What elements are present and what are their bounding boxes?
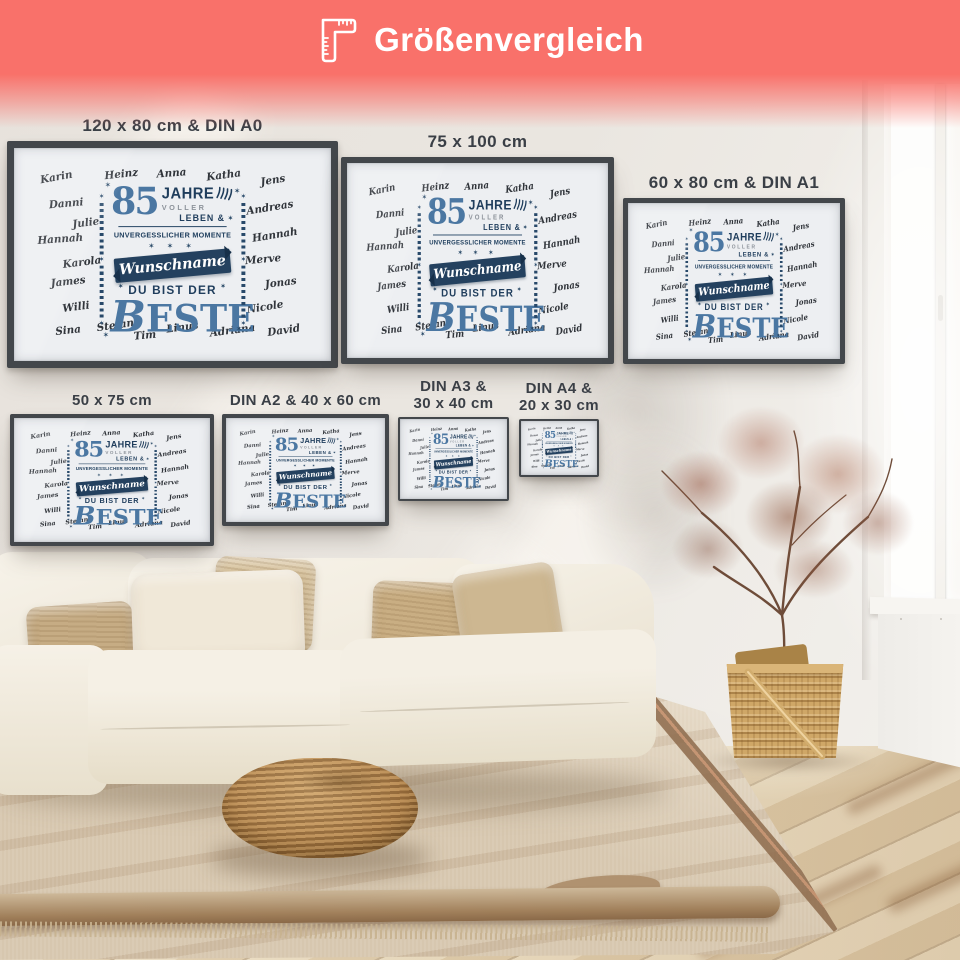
star-icon: ✶ xyxy=(271,507,274,511)
age-caption-column: JAHRE VOLLER LEBEN & xyxy=(469,197,528,231)
product-size-comparison-image: 120 x 80 cm & DIN A0 KarinHeinzAnnaKatha… xyxy=(0,0,960,960)
age-caption-column: JAHRE VOLLER LEBEN & xyxy=(162,186,234,223)
word-unvergesslicher-momente: UNVERGESSLICHER MOMENTE xyxy=(693,263,776,270)
sideboard-door-seam xyxy=(940,618,942,620)
star-icon: ✶ xyxy=(69,524,73,529)
star-icon: ✶ xyxy=(269,502,272,505)
star-icon: ✶ xyxy=(771,252,775,257)
dashed-ornament xyxy=(685,243,688,281)
guest-name: Hannah xyxy=(408,451,423,457)
word-leben: LEBEN & ✶ xyxy=(483,223,528,231)
guest-name: Danni xyxy=(48,196,84,211)
guest-name: James xyxy=(37,491,59,500)
ornament-column-right: ✶ ✶ ✶ xyxy=(778,237,785,334)
wunschname-ribbon: Wunschname xyxy=(545,446,573,455)
age-caption-column: JAHRE VOLLER LEBEN & xyxy=(727,231,775,258)
size-label-line: DIN A2 & 40 x 60 cm xyxy=(230,392,381,409)
guest-name: Jens xyxy=(349,430,362,438)
jahre-line: JAHRE xyxy=(450,434,474,440)
laurel-icon xyxy=(569,431,574,435)
poster-size-label: 75 x 100 cm xyxy=(428,132,528,152)
jahre-line: JAHRE xyxy=(469,198,528,212)
poster-artwork: KarinHeinzAnnaKathaJensDanniAndreasJulie… xyxy=(522,422,596,474)
guest-name: Hannah xyxy=(527,442,538,446)
word-voller: VOLLER xyxy=(162,204,207,212)
star-icon: ✶ xyxy=(333,451,336,454)
ornament-column-left: ✶ ✶ ✶ xyxy=(97,194,107,328)
guest-name: Julie xyxy=(72,215,100,230)
word-jahre: JAHRE xyxy=(105,441,137,450)
star-icon: ✶ xyxy=(278,483,281,486)
ornament-column-left: ✶ ✶ ✶ xyxy=(415,205,423,327)
word-leben-text: LEBEN & xyxy=(309,450,332,454)
age-number: 85 xyxy=(111,186,158,218)
dashed-ornament xyxy=(100,266,104,318)
star-icon: ✶ xyxy=(543,467,545,469)
poster-frame: KarinHeinzAnnaKathaJensDanniAndreasJulie… xyxy=(7,141,338,368)
word-leben-text: LEBEN & xyxy=(561,438,572,440)
dashed-ornament xyxy=(534,271,537,319)
poster-frame: KarinHeinzAnnaKathaJensDanniAndreasJulie… xyxy=(623,198,845,364)
star-icon: ✶ xyxy=(240,257,246,264)
ornament-column-right: ✶ ✶ ✶ xyxy=(575,433,577,466)
guest-name: Danni xyxy=(36,446,58,455)
guest-name: Danni xyxy=(412,437,424,443)
guest-name: Willi xyxy=(44,506,61,515)
star-icon: ✶ xyxy=(573,432,575,434)
dashed-ornament xyxy=(575,435,576,448)
jahre-line: JAHRE xyxy=(727,231,775,242)
ornament-column-right: ✶ ✶ ✶ xyxy=(153,445,159,522)
size-label-line: DIN A4 & xyxy=(519,380,599,397)
age-row: 85 JAHRE VOLLE xyxy=(546,431,571,441)
dashed-ornament xyxy=(575,451,576,464)
age-number: 85 xyxy=(74,440,103,458)
guest-name: Hannah xyxy=(578,441,589,446)
word-leben: LEBEN & ✶ xyxy=(561,438,574,440)
guest-name: David xyxy=(581,465,589,469)
guest-name: Anna xyxy=(555,426,562,430)
poster-frame: KarinHeinzAnnaKathaJensDanniAndreasJulie… xyxy=(222,414,389,526)
guest-name: Andreas xyxy=(538,209,578,227)
star-icon: ✶ xyxy=(776,333,780,339)
dashed-ornament xyxy=(269,476,271,501)
framed-poster: DIN A4 &20 x 30 cm KarinHeinzAnnaKathaJe… xyxy=(519,378,599,477)
word-leben-text: LEBEN & xyxy=(739,251,770,258)
star-icon: ✶ xyxy=(433,286,438,292)
star-icon: ✶ xyxy=(70,438,74,443)
laurel-icon xyxy=(138,440,150,449)
framed-poster: 75 x 100 cm KarinHeinzAnnaKathaJensDanni… xyxy=(341,131,614,364)
age-row: 85 JAHRE VOLLE xyxy=(698,231,770,261)
guest-name: Andreas xyxy=(157,447,187,458)
dashed-ornament xyxy=(67,487,69,517)
word-leben: LEBEN & ✶ xyxy=(456,444,474,447)
guest-name: Sina xyxy=(381,323,403,337)
star-icon: ✶ xyxy=(430,487,432,490)
star-icon: ✶ xyxy=(228,214,234,221)
word-unvergesslicher-momente: UNVERGESSLICHER MOMENTE xyxy=(433,450,474,453)
guest-name: Katha xyxy=(465,427,477,433)
page-title: Größenvergleich xyxy=(374,21,644,59)
star-icon: ✶ xyxy=(105,181,112,189)
size-label-line: 50 x 75 cm xyxy=(72,392,152,409)
star-icon: ✶ xyxy=(330,483,333,486)
word-voller: VOLLER xyxy=(105,451,133,455)
poster-paper: KarinHeinzAnnaKathaJensDanniAndreasJulie… xyxy=(347,163,608,358)
star-icon: ✶ xyxy=(530,325,535,332)
guest-name: Willi xyxy=(660,314,679,325)
word-jahre: JAHRE xyxy=(162,187,215,202)
framed-poster: 60 x 80 cm & DIN A1 KarinHeinzAnnaKathaJ… xyxy=(623,172,845,364)
star-icon: ✶ xyxy=(417,205,422,211)
star-icon: ✶ xyxy=(67,481,71,485)
star-icon: ✶ xyxy=(422,194,427,201)
jahre-line: JAHRE xyxy=(105,441,149,450)
wunschname-ribbon: Wunschname xyxy=(429,254,526,286)
word-leben-text: LEBEN & xyxy=(456,444,471,447)
guest-name: Jens xyxy=(792,221,810,233)
star-icon: ✶ xyxy=(685,329,689,334)
guest-name: Andreas xyxy=(342,443,366,452)
guest-name: Jens xyxy=(166,433,182,442)
rattan-pouf xyxy=(222,758,418,858)
guest-name: James xyxy=(50,274,86,290)
dashed-ornament xyxy=(418,271,421,319)
word-beste: BESTE xyxy=(544,459,573,469)
wunschname-ribbon: Wunschname xyxy=(695,276,774,301)
guest-name: Jens xyxy=(260,172,286,188)
dashed-ornament xyxy=(340,476,342,501)
dashed-ornament xyxy=(429,440,430,459)
dashed-ornament xyxy=(685,289,688,327)
size-label-line: DIN A3 & xyxy=(414,378,494,395)
poster-artwork: KarinHeinzAnnaKathaJensDanniAndreasJulie… xyxy=(15,419,209,541)
guest-name: Danni xyxy=(375,207,404,221)
ribbon-text: Wunschname xyxy=(279,468,333,481)
guest-name: David xyxy=(555,322,583,337)
guest-name: Merve xyxy=(156,478,179,487)
star-icon: ✶ xyxy=(766,301,770,306)
poster-center-emblem: ✶ ✶ ✶ ✶ ✶ ✶ ✶ xyxy=(427,197,529,336)
star-icon: ✶ xyxy=(572,438,573,440)
dashed-ornament xyxy=(269,445,271,470)
word-leben: LEBEN & ✶ xyxy=(116,456,150,461)
poster-center-emblem: ✶ ✶ ✶ ✶ ✶ ✶ ✶ xyxy=(433,434,474,490)
guest-name: James xyxy=(652,295,676,307)
star-icon: ✶ xyxy=(431,432,433,435)
ornament-column-left: ✶ ✶ ✶ xyxy=(428,437,431,486)
word-voller: VOLLER xyxy=(727,244,757,250)
star-icon: ✶ xyxy=(269,471,272,474)
guest-name: Merve xyxy=(478,458,490,464)
wunschname-ribbon: Wunschname xyxy=(434,457,473,470)
size-label-line: 75 x 100 cm xyxy=(428,132,528,152)
guest-name: James xyxy=(377,278,407,293)
guest-name: Andreas xyxy=(576,434,587,439)
poster-artwork: KarinHeinzAnnaKathaJensDanniAndreasJulie… xyxy=(401,420,506,498)
poster-center-emblem: ✶ ✶ ✶ ✶ ✶ ✶ ✶ xyxy=(544,431,573,468)
dashed-ornament xyxy=(100,203,104,255)
dashed-ornament xyxy=(476,440,477,459)
star-icon: ✶ xyxy=(476,437,478,440)
guest-name: Andreas xyxy=(783,240,815,254)
star-icon: ✶ xyxy=(417,263,422,269)
guest-name: Karin xyxy=(30,430,51,440)
word-jahre: JAHRE xyxy=(450,434,468,440)
age-number: 85 xyxy=(545,431,556,439)
age-caption-column: JAHRE VOLLER LEBEN & xyxy=(105,440,149,461)
guest-name: Katha xyxy=(505,181,534,196)
laurel-icon xyxy=(763,231,776,243)
dashed-ornament xyxy=(67,450,69,480)
jahre-line: JAHRE xyxy=(300,437,336,444)
age-row: 85 JAHRE VOLLE xyxy=(79,440,146,464)
ornament-column-right: ✶ ✶ ✶ xyxy=(532,205,540,327)
guest-name: Hannah xyxy=(644,264,675,275)
star-icon: ✶ xyxy=(435,469,437,472)
age-row: 85 JAHRE VOLLE xyxy=(435,434,471,449)
guest-name: Hannah xyxy=(480,448,496,455)
word-unvergesslicher-momente: UNVERGESSLICHER MOMENTE xyxy=(110,230,234,239)
wunschname-ribbon: Wunschname xyxy=(276,467,335,484)
star-icon: ✶ xyxy=(429,460,431,463)
star-icon: ✶ xyxy=(475,485,477,488)
guest-name: Willi xyxy=(417,476,426,482)
laurel-icon xyxy=(513,198,529,213)
dashed-ornament xyxy=(241,266,245,318)
dried-flower-cluster xyxy=(658,508,758,590)
guest-name: David xyxy=(267,322,301,339)
poster-paper: KarinHeinzAnnaKathaJensDanniAndreasJulie… xyxy=(400,419,507,499)
guest-name: Andreas xyxy=(246,198,295,218)
dashed-ornament xyxy=(154,487,156,517)
star-icon: ✶ xyxy=(142,496,146,500)
ornament-column-left: ✶ ✶ ✶ xyxy=(65,445,71,522)
poster-paper: KarinHeinzAnnaKathaJensDanniAndreasJulie… xyxy=(521,421,597,475)
wunschname-ribbon: Wunschname xyxy=(114,248,232,283)
guest-name: Merve xyxy=(245,252,282,267)
word-jahre: JAHRE xyxy=(727,231,762,242)
guest-name: Karin xyxy=(645,218,668,231)
word-beste: BESTE xyxy=(427,300,529,336)
poster-size-label: DIN A3 &30 x 40 cm xyxy=(414,378,494,413)
age-number: 85 xyxy=(275,437,298,452)
dashed-ornament xyxy=(780,243,783,281)
dried-flower-cluster xyxy=(758,528,870,610)
guest-name: Hannah xyxy=(366,240,404,254)
guest-name: Danni xyxy=(244,442,262,449)
dashed-ornament xyxy=(534,213,537,261)
guest-name: Andreas xyxy=(478,438,494,445)
banner-content: Größenvergleich xyxy=(316,17,644,63)
guest-name: James xyxy=(245,479,263,487)
guest-name: Hannah xyxy=(251,226,298,245)
size-label-line: 20 x 30 cm xyxy=(519,397,599,414)
poster-center-emblem: ✶ ✶ ✶ ✶ ✶ ✶ ✶ xyxy=(275,437,337,510)
guest-name: Katha xyxy=(132,429,154,439)
wunschname-ribbon: Wunschname xyxy=(76,476,149,496)
word-beste: BESTE xyxy=(110,298,234,338)
star-icon: ✶ xyxy=(269,441,272,444)
framed-poster: 50 x 75 cm KarinHeinzAnnaKathaJensDanniA… xyxy=(10,388,214,546)
laurel-icon xyxy=(468,434,475,440)
guest-name: Hannah xyxy=(161,463,190,474)
word-beste: BESTE xyxy=(74,505,150,528)
ribbon-text: Wunschname xyxy=(118,251,226,278)
guest-name: Katha xyxy=(322,428,340,436)
age-row: 85 JAHRE VOLLE xyxy=(118,186,226,227)
age-row: 85 JAHRE VOLLE xyxy=(433,197,522,235)
guest-name: Danni xyxy=(530,434,538,438)
word-voller: VOLLER xyxy=(469,214,506,221)
laurel-icon xyxy=(327,437,337,445)
guest-name: Jens xyxy=(549,185,571,200)
word-voller: VOLLER xyxy=(300,445,322,449)
guest-name: Willi xyxy=(250,492,264,499)
guest-name: Merve xyxy=(576,447,585,451)
star-icon: ✶ xyxy=(429,437,431,440)
poster-center-emblem: ✶ ✶ ✶ ✶ ✶ ✶ ✶ xyxy=(110,186,234,338)
ribbon-text: Wunschname xyxy=(435,458,471,468)
guest-name: Jonas xyxy=(553,279,580,294)
guest-name: David xyxy=(485,484,496,490)
star-icon: ✶ xyxy=(221,282,227,289)
guest-name: Hannah xyxy=(345,456,368,465)
poster-frame: KarinHeinzAnnaKathaJensDanniAndreasJulie… xyxy=(341,157,614,364)
star-icon: ✶ xyxy=(103,331,110,339)
star-icon: ✶ xyxy=(698,301,702,306)
word-leben-text: LEBEN & xyxy=(483,223,521,231)
star-icon: ✶ xyxy=(779,283,783,288)
guest-name: Sina xyxy=(247,503,260,510)
guest-name: Hannah xyxy=(37,232,83,247)
dashed-ornament xyxy=(476,463,477,482)
dashed-ornament xyxy=(340,445,342,470)
star-icon: ✶ xyxy=(99,194,105,201)
star-icon: ✶ xyxy=(79,496,83,500)
size-label-line: 60 x 80 cm & DIN A1 xyxy=(649,173,819,193)
corner-ruler-icon xyxy=(316,17,360,63)
star-icon: ✶ xyxy=(151,521,155,526)
star-icon: ✶ xyxy=(272,435,275,439)
star-icon: ✶ xyxy=(118,282,124,289)
star-icon: ✶ xyxy=(543,430,545,432)
poster-paper: KarinHeinzAnnaKathaJensDanniAndreasJulie… xyxy=(628,203,840,359)
star-icon: ✶ xyxy=(570,455,571,457)
poster-center-emblem: ✶ ✶ ✶ ✶ ✶ ✶ ✶ xyxy=(693,231,776,342)
star-icon: ✶ xyxy=(429,483,431,486)
star-icon: ✶ xyxy=(689,228,693,234)
age-row: 85 JAHRE VOLLE xyxy=(279,437,333,457)
guest-name: Anna xyxy=(297,427,312,434)
guest-name: Karin xyxy=(39,168,73,186)
star-icon: ✶ xyxy=(517,286,522,292)
age-number: 85 xyxy=(427,197,465,226)
ornament-column-left: ✶ ✶ ✶ xyxy=(541,433,543,466)
age-number: 85 xyxy=(693,231,724,254)
dashed-ornament xyxy=(418,213,421,261)
sofa-seat-cushion xyxy=(340,628,656,767)
guest-name: Hannah xyxy=(238,459,261,466)
star-icon: ✶ xyxy=(240,194,246,201)
guest-name: David xyxy=(170,519,191,529)
guest-name: Hannah xyxy=(542,234,581,252)
framed-poster: 120 x 80 cm & DIN A0 KarinHeinzAnnaKatha… xyxy=(7,115,338,368)
word-jahre: JAHRE xyxy=(300,437,326,444)
poster-frame: KarinHeinzAnnaKathaJensDanniAndreasJulie… xyxy=(398,417,509,501)
guest-name: James xyxy=(413,466,425,472)
ribbon-text: Wunschname xyxy=(698,279,770,299)
guest-name: Willi xyxy=(62,300,90,315)
ribbon-text: Wunschname xyxy=(546,447,571,454)
word-leben: LEBEN & ✶ xyxy=(309,450,336,454)
poster-paper: KarinHeinzAnnaKathaJensDanniAndreasJulie… xyxy=(14,148,331,361)
star-icon: ✶ xyxy=(420,331,425,338)
dashed-ornament xyxy=(542,435,543,448)
star-icon: ✶ xyxy=(339,471,342,474)
star-icon: ✶ xyxy=(528,199,533,206)
star-icon: ✶ xyxy=(779,237,783,242)
guest-name: Anna xyxy=(102,429,121,437)
guest-name: Karin xyxy=(409,427,420,434)
size-comparison-banner: Größenvergleich xyxy=(0,0,960,128)
poster-size-label: DIN A2 & 40 x 60 cm xyxy=(230,392,381,409)
guest-name: Willi xyxy=(533,459,540,463)
star-icon: ✶ xyxy=(336,438,339,442)
word-leben: LEBEN & ✶ xyxy=(179,213,234,222)
word-leben: LEBEN & ✶ xyxy=(739,251,775,258)
star-icon: ✶ xyxy=(67,518,71,522)
star-icon: ✶ xyxy=(685,237,689,242)
word-jahre: JAHRE xyxy=(469,198,512,212)
star-icon: ✶ xyxy=(99,257,105,264)
poster-size-label: 50 x 75 cm xyxy=(72,392,152,409)
framed-poster: DIN A3 &30 x 40 cm KarinHeinzAnnaKathaJe… xyxy=(398,376,509,501)
poster-size-label: DIN A4 &20 x 30 cm xyxy=(519,380,599,415)
dashed-ornament xyxy=(429,463,430,482)
star-icon: ✶ xyxy=(236,325,243,333)
age-caption-column: JAHRE VOLLER LEBEN & xyxy=(300,437,336,455)
star-icon: ✶ xyxy=(574,465,576,467)
star-icon: ✶ xyxy=(523,224,528,230)
star-icon: ✶ xyxy=(687,337,691,343)
star-icon: ✶ xyxy=(339,441,342,444)
star-icon: ✶ xyxy=(474,434,476,437)
star-icon: ✶ xyxy=(476,460,478,463)
guest-name: Jonas xyxy=(351,480,367,488)
age-caption-column: JAHRE VOLLER LEBEN & xyxy=(450,434,474,448)
guest-name: Sina xyxy=(414,484,423,489)
poster-artwork: KarinHeinzAnnaKathaJensDanniAndreasJulie… xyxy=(227,419,384,521)
poster-frame: KarinHeinzAnnaKathaJensDanniAndreasJulie… xyxy=(10,414,214,546)
guest-name: Merve xyxy=(341,469,359,476)
poster-artwork: KarinHeinzAnnaKathaJensDanniAndreasJulie… xyxy=(348,164,607,357)
star-icon: ✶ xyxy=(154,481,158,485)
star-icon: ✶ xyxy=(154,445,158,449)
word-leben-text: LEBEN & xyxy=(179,213,225,222)
guest-name: Jonas xyxy=(484,467,495,473)
guest-name: James xyxy=(530,453,538,457)
star-icon: ✶ xyxy=(470,469,472,472)
guest-name: Sina xyxy=(55,323,82,338)
word-beste: BESTE xyxy=(693,312,776,341)
guest-name: Hannah xyxy=(29,467,58,476)
ornament-column-right: ✶ ✶ ✶ xyxy=(238,194,248,328)
ornament-column-right: ✶ ✶ ✶ xyxy=(338,441,343,506)
star-icon: ✶ xyxy=(417,320,422,326)
poster-size-label: 60 x 80 cm & DIN A1 xyxy=(649,173,819,193)
